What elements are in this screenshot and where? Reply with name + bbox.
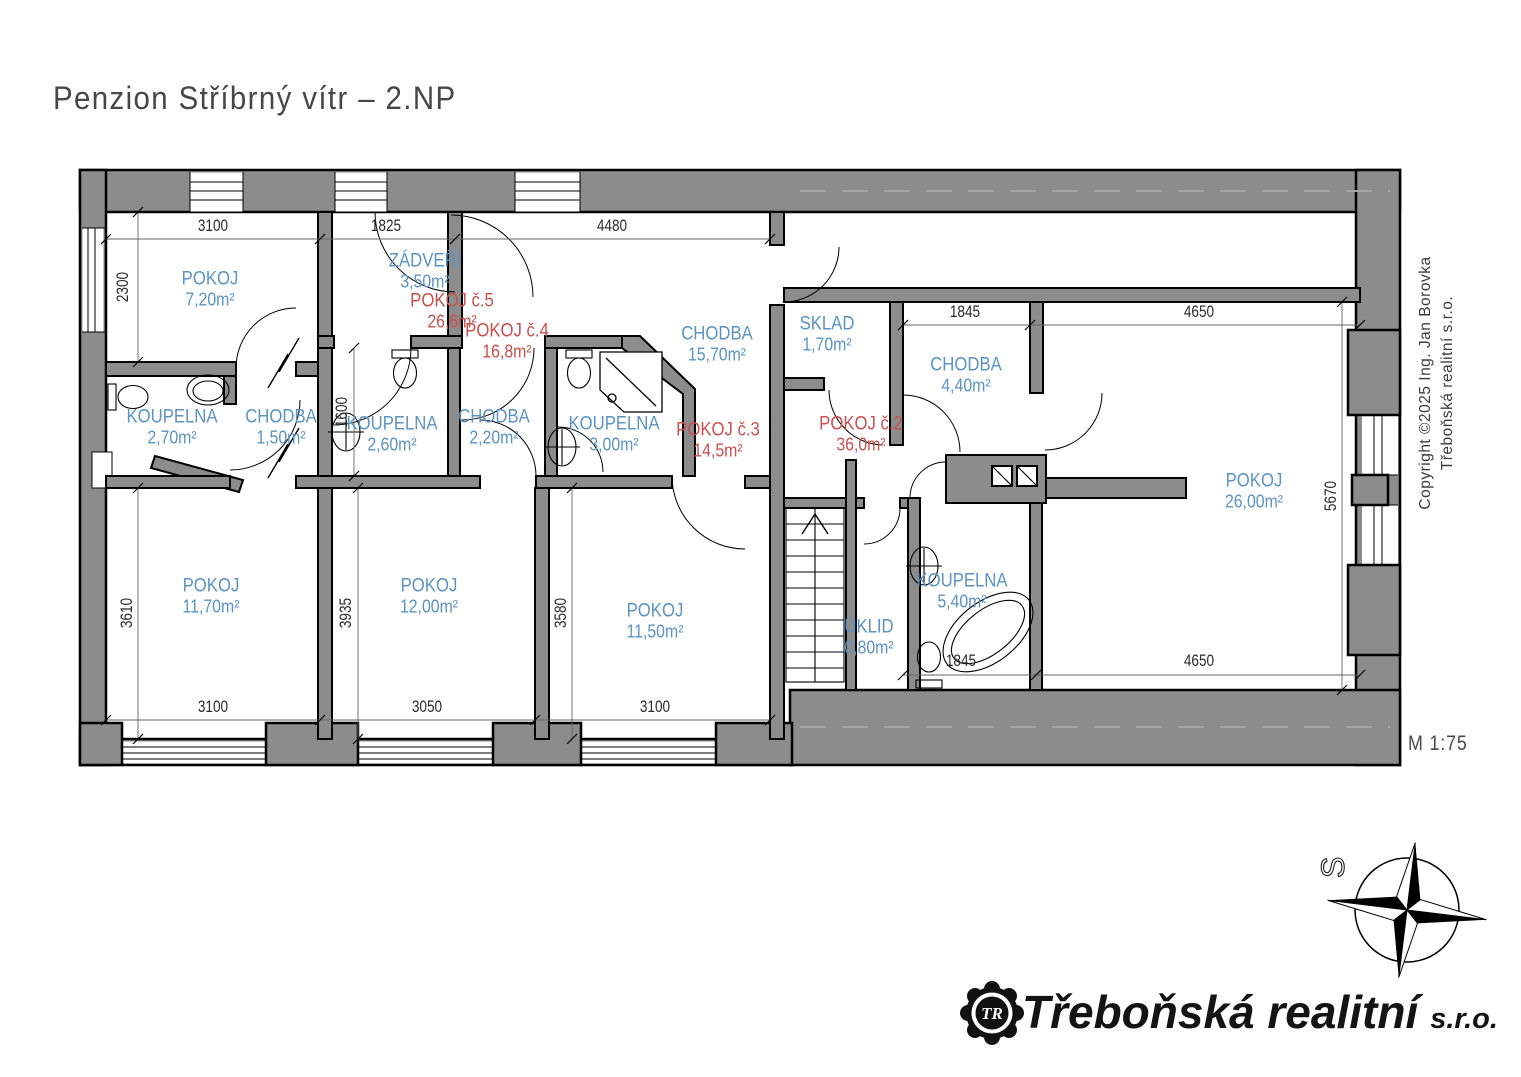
page-title: Penzion Stříbrný vítr – 2.NP [53,80,457,117]
shower-icon [600,352,662,412]
compass-north-label: S [1315,857,1351,878]
room-label-uklid: ÚKLID0,80m² [844,618,893,659]
chimney [946,455,1186,503]
outer-walls [80,170,1400,765]
floorplan-page: S TR Penzion Stříbrný vítr – 2.NP POKOJ7… [0,0,1521,1077]
windows-bottom [122,742,724,764]
dim-bottom-1845: 1845 [946,651,976,671]
room-label-sklad: SKLAD1,70m² [800,315,855,356]
room-label-pokoj-1200: POKOJ12,00m² [400,577,458,618]
unit-label-pokoj-c4: POKOJ č.416,8m² [465,322,549,363]
room-label-chodba-220: CHODBA2,20m² [458,408,530,449]
dim-top-4480: 4480 [597,216,627,236]
company-suffix: s.r.o. [1430,1003,1498,1036]
room-label-zadveri: ZÁDVEŘÍ3,50m² [389,252,461,293]
dim-bottom-3050: 3050 [412,697,442,717]
dim-left-3610: 3610 [117,598,137,628]
logo-badge-initials: TR [981,1004,1003,1023]
dim-right-5670: 5670 [1321,481,1341,511]
dim-left-2300: 2300 [113,272,133,302]
room-label-chodba-150: CHODBA1,50m² [245,408,317,449]
room-label-chodba-1570: CHODBA15,70m² [681,325,753,366]
room-label-koupelna-540: KOUPELNA5,40m² [916,572,1007,613]
dim-bottom-3100a: 3100 [198,697,228,717]
room-label-chodba-440: CHODBA4,40m² [930,356,1002,397]
dim-bottom-4650: 4650 [1184,651,1214,671]
logo-badge-icon: TR [960,981,1024,1045]
dim-top-1845: 1845 [950,302,980,322]
copyright-line2: Třeboňská realitní s.r.o. [1437,163,1459,603]
floorplan-drawing: S TR [0,0,1521,1077]
compass-rose-icon: S [1315,833,1495,987]
room-label-pokoj-1150: POKOJ11,50m² [627,602,684,643]
dim-mid-3935: 3935 [336,598,356,628]
company-logo: Třeboňská realitní s.r.o. [1022,985,1498,1039]
unit-label-pokoj-c2: POKOJ č.236,0m² [819,415,903,456]
dim-bottom-3100b: 3100 [640,697,670,717]
room-label-koupelna-300: KOUPELNA3,00m² [568,415,659,456]
scale-label: M 1:75 [1408,732,1468,756]
room-label-koupelna-270: KOUPELNA2,70m² [126,408,217,449]
room-label-pokoj-1170: POKOJ11,70m² [183,577,240,618]
dim-mid-3580: 3580 [551,598,571,628]
staircase [786,508,844,682]
copyright-note: Copyright ©2025 Ing. Jan Borovka Třeboňs… [1415,163,1461,603]
copyright-line1: Copyright ©2025 Ing. Jan Borovka [1415,163,1437,603]
room-label-koupelna-260: KOUPELNA2,60m² [346,415,437,456]
interior-walls [106,212,1360,739]
room-label-pokoj-720: POKOJ7,20m² [182,270,239,311]
unit-label-pokoj-c3: POKOJ č.314,5m² [676,421,760,462]
dim-top-4650: 4650 [1184,302,1214,322]
dim-top-3100: 3100 [198,216,228,236]
dim-top-1825: 1825 [371,216,401,236]
dim-mid-1600: 1600 [332,397,352,427]
room-label-pokoj-2600: POKOJ26,00m² [1225,472,1283,513]
company-name: Třeboňská realitní [1022,985,1418,1039]
